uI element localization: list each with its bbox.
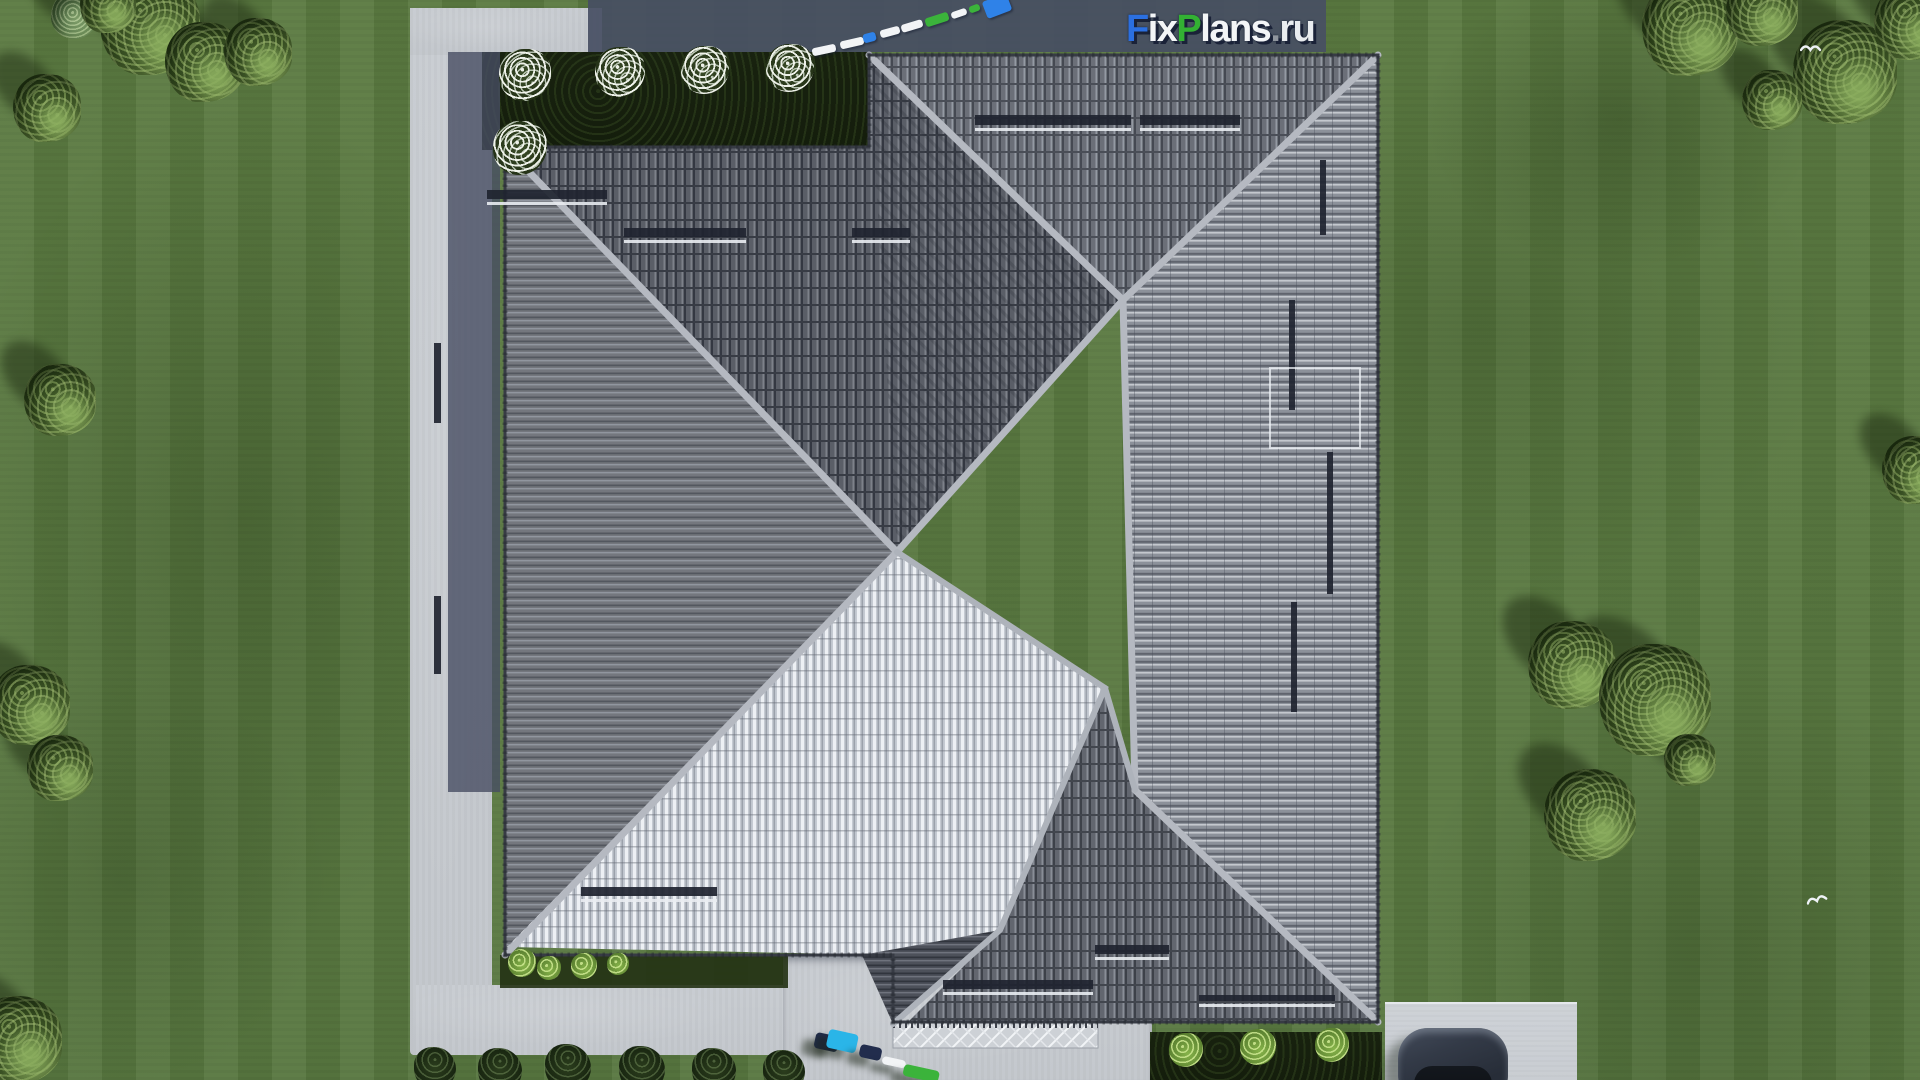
bird-icon [1800,42,1822,54]
bird-icon [1805,890,1829,907]
aerial-render: FixPlans.ru [0,0,1920,1080]
bird-layer [0,0,1920,1080]
